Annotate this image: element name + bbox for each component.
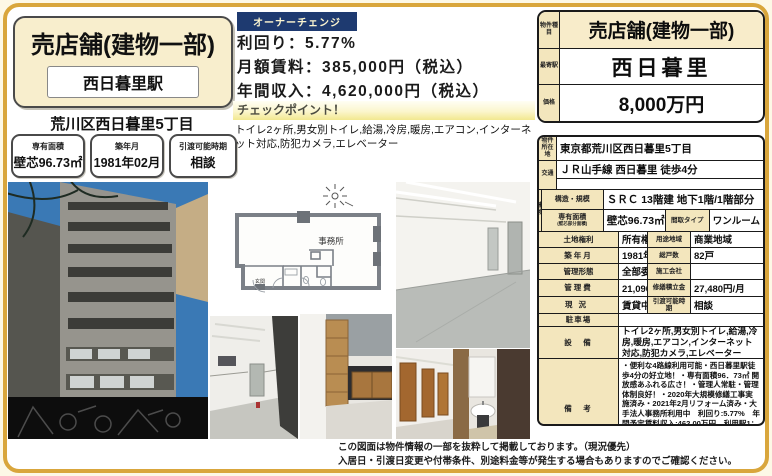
mgmt-form-value: 全部委託 — [619, 264, 647, 279]
checkpoint-heading: チェックポイント！ — [233, 101, 535, 120]
property-type-title: 売店舗(建物一部) — [31, 25, 215, 60]
detail-row-land: 土地権利 所有権 用途地域 商業地域 — [539, 232, 763, 248]
mgmt-form-label: 管理形態 — [539, 264, 619, 279]
interior-photo-cabinet — [300, 314, 392, 439]
repair-fund-label: 修繕積立金 — [647, 280, 691, 296]
repair-fund-value: 27,480円/月 — [691, 280, 763, 296]
detail-row-building: 建物 構造・規模 ＳＲＣ 13階建 地下1階/1階部分 専有面積(壁芯部分面積)… — [539, 190, 763, 232]
area-label: 専有面積(壁芯部分面積) — [542, 210, 604, 230]
type-value: 売店舗(建物一部) — [560, 12, 763, 48]
info-box-row: 専有面積 壁芯96.73㎡ 築年月 1981年02月 引渡可能時期 相談 — [8, 134, 240, 178]
footer-line-1: この図面は物件情報の一部を抜粋して掲載しております。（現況優先） — [338, 441, 768, 455]
handover-value: 相談 — [190, 152, 215, 171]
zoning-value: 商業地域 — [691, 232, 763, 247]
zoning-label: 用途地域 — [647, 232, 691, 247]
detail-row-fees: 管理費 21,090円/月 修繕積立金 27,480円/月 — [539, 280, 763, 297]
floor-plan: 事務所 玄関 — [213, 182, 393, 314]
area-value: 壁芯96.73㎡ — [14, 152, 83, 171]
building-exterior-photo — [8, 182, 208, 439]
price-row-station: 最寄駅 西日暮里 — [539, 49, 763, 86]
yield-line: 利回り：5.77% — [237, 31, 356, 53]
price-row-type: 物件種目 売店舗(建物一部) — [539, 12, 763, 49]
mgmt-fee-value: 21,090円/月 — [619, 280, 647, 296]
constructor-label: 施工会社 — [647, 264, 691, 279]
remarks-value: ・便利な4路線利用可能・西日暮里駅徒歩4分の好立地！・専有面積96．73㎡ 開放… — [619, 359, 763, 426]
layout-value: ワンルーム — [710, 210, 763, 230]
office-room-photo — [396, 182, 530, 348]
price-label: 価格 — [539, 85, 560, 121]
built-year-label: 築年月 — [539, 248, 619, 263]
location-label: 物件所在地 — [539, 137, 557, 160]
land-label: 土地権利 — [539, 232, 619, 247]
address-line: 荒川区西日暮里5丁目 — [8, 113, 236, 134]
price-row-price: 価格 8,000万円 — [539, 85, 763, 121]
units-value: 82戸 — [691, 248, 763, 263]
status-value: 賃貸中 — [619, 297, 647, 313]
built-label: 築年月 — [115, 141, 139, 152]
detail-row-status: 現況 賃貸中 引渡可能時期 相談 — [539, 297, 763, 314]
built-value: 1981年02月 — [94, 152, 161, 171]
units-label: 総戸数 — [647, 248, 691, 263]
handover-label: 引渡可能時期 — [179, 141, 227, 152]
built-year-value: 1981年02月 — [619, 248, 647, 263]
handover-time-value: 相談 — [691, 297, 763, 313]
washroom-photo — [453, 349, 530, 439]
hallway-doors-photo — [396, 349, 453, 439]
annual-income-line: 年間収入：4,620,000円（税込） — [237, 79, 489, 101]
status-label: 現況 — [539, 297, 619, 313]
constructor-value — [691, 264, 763, 279]
access-label: 交通 — [539, 161, 557, 189]
structure-value: ＳＲＣ 13階建 地下1階/1階部分 — [604, 190, 763, 210]
parking-value — [619, 314, 763, 326]
info-box-area: 専有面積 壁芯96.73㎡ — [11, 134, 85, 178]
access-value: ＪＲ山手線 西日暮里 徒歩4分 — [557, 161, 763, 178]
access-value-2 — [557, 179, 763, 189]
station-name-box: 西日暮里駅 — [47, 66, 199, 98]
structure-label: 構造・規模 — [542, 190, 604, 210]
info-box-built: 築年月 1981年02月 — [90, 134, 164, 178]
remarks-label: 備 考 — [539, 359, 619, 426]
detail-row-access: 交通 ＪＲ山手線 西日暮里 徒歩4分 — [539, 161, 763, 190]
location-value: 東京都荒川区西日暮里5丁目 — [557, 137, 763, 160]
floor-plan-entrance-label: 玄関 — [255, 278, 265, 285]
area-label: 専有面積 — [32, 141, 64, 152]
detail-row-remarks: 備 考 ・便利な4路線利用可能・西日暮里駅徒歩4分の好立地！・専有面積96．73… — [539, 359, 763, 426]
equipment-value: トイレ2ヶ所,男女別トイレ,給湯,冷房,暖房,エアコン,インターネット対応,防犯… — [619, 327, 763, 358]
station-label: 最寄駅 — [539, 49, 560, 85]
mgmt-fee-label: 管理費 — [539, 280, 619, 296]
property-title-box: 売店舗(建物一部) 西日暮里駅 — [13, 16, 233, 108]
detail-row-equipment: 設 備 トイレ2ヶ所,男女別トイレ,給湯,冷房,暖房,エアコン,インターネット対… — [539, 327, 763, 359]
footer-disclaimer: この図面は物件情報の一部を抜粋して掲載しております。（現況優先） 入居日・引渡日… — [338, 441, 768, 468]
detail-row-parking: 駐車場 — [539, 314, 763, 327]
monthly-rent-line: 月額賃料：385,000円（税込） — [237, 55, 474, 77]
layout-label: 間取タイプ — [666, 210, 710, 230]
interior-photo-hall — [210, 316, 298, 439]
owner-change-badge: オーナーチェンジ — [237, 12, 357, 31]
handover-time-label: 引渡可能時期 — [647, 297, 691, 313]
area-value: 壁芯96.73㎡ — [604, 210, 666, 230]
floor-plan-room-label: 事務所 — [318, 236, 344, 246]
price-value: 8,000万円 — [560, 85, 763, 121]
detail-row-management: 管理形態 全部委託 施工会社 — [539, 264, 763, 280]
detail-row-location: 物件所在地 東京都荒川区西日暮里5丁目 — [539, 137, 763, 161]
detail-row-built: 築年月 1981年02月 総戸数 82戸 — [539, 248, 763, 264]
parking-label: 駐車場 — [539, 314, 619, 326]
equipment-label: 設 備 — [539, 327, 619, 358]
info-box-handover: 引渡可能時期 相談 — [169, 134, 237, 178]
property-detail-table: 物件所在地 東京都荒川区西日暮里5丁目 交通 ＪＲ山手線 西日暮里 徒歩4分 建… — [537, 135, 765, 426]
checkpoint-features: トイレ2ヶ所,男女別トイレ,給湯,冷房,暖房,エアコン,インターネット対応,防犯… — [235, 123, 537, 151]
station-value: 西日暮里 — [560, 49, 763, 85]
type-label: 物件種目 — [539, 12, 560, 48]
land-value: 所有権 — [619, 232, 647, 247]
footer-line-2: 入居日・引渡日変更や付帯条件、別途料金等が発生する場合もありますのでご確認くださ… — [338, 455, 768, 469]
price-summary-table: 物件種目 売店舗(建物一部) 最寄駅 西日暮里 価格 8,000万円 — [537, 10, 765, 123]
